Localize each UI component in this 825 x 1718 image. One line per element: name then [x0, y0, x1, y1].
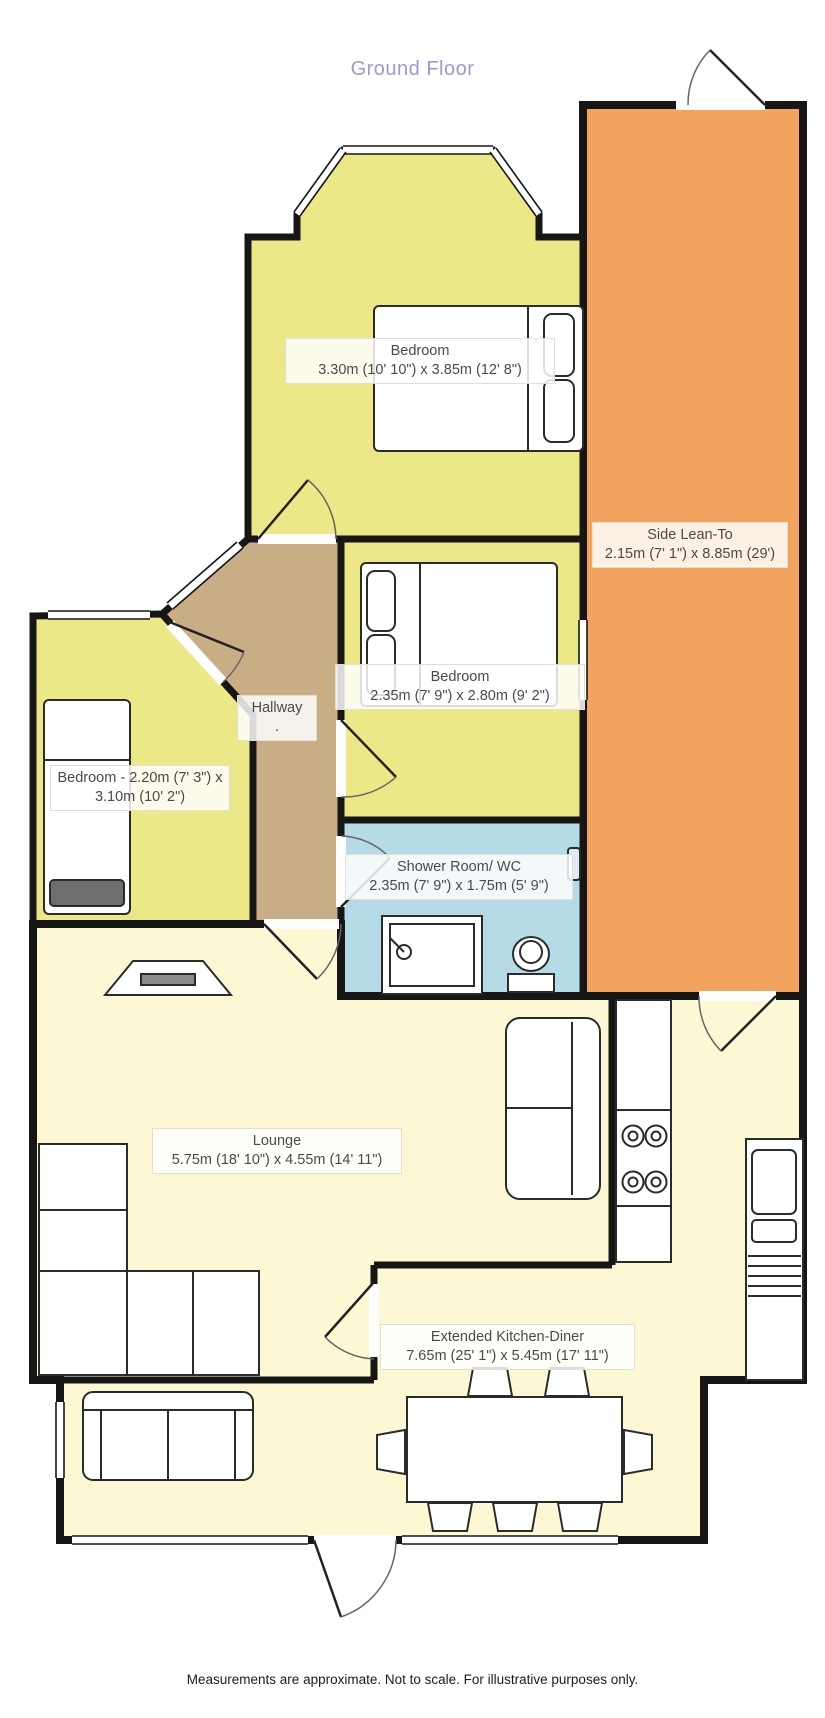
room-dims: 5.75m (18' 10") x 4.55m (14' 11") [172, 1151, 383, 1170]
room-dims: 2.35m (7' 9") x 1.75m (5' 9") [369, 877, 548, 896]
window-icon [402, 1536, 618, 1544]
sink-icon [746, 1139, 803, 1380]
hob-icon [616, 1000, 671, 1262]
room-label-kitchen-diner: Extended Kitchen-Diner 7.65m (25' 1") x … [380, 1324, 635, 1370]
door-arc-icon [688, 50, 765, 105]
room-label-bedroom-middle: Bedroom 2.35m (7' 9") x 2.80m (9' 2") [335, 664, 585, 710]
room-name: Bedroom [431, 668, 490, 687]
room-label-side-lean-to: Side Lean-To 2.15m (7' 1") x 8.85m (29') [592, 522, 788, 568]
room-name: Bedroom - 2.20m (7' 3") x 3.10m (10' 2") [56, 769, 224, 807]
room-dims: 2.15m (7' 1") x 8.85m (29') [605, 545, 775, 564]
room-label-bedroom-top: Bedroom 3.30m (10' 10") x 3.85m (12' 8") [285, 338, 555, 384]
room-name: Hallway [252, 699, 303, 718]
room-dims: 7.65m (25' 1") x 5.45m (17' 11") [406, 1347, 609, 1366]
room-dims: 2.35m (7' 9") x 2.80m (9' 2") [370, 687, 549, 706]
sofa-icon [83, 1392, 253, 1480]
room-dims: 3.30m (10' 10") x 3.85m (12' 8") [318, 361, 522, 380]
sofa-icon [506, 1018, 600, 1199]
room-label-hallway: Hallway . [237, 695, 317, 741]
room-name: Bedroom [391, 342, 450, 361]
floorplan-page: Ground Floor [0, 0, 825, 1718]
room-label-bedroom-left: Bedroom - 2.20m (7' 3") x 3.10m (10' 2") [50, 765, 230, 811]
window-icon [48, 611, 150, 619]
window-icon [56, 1402, 64, 1478]
disclaimer-text: Measurements are approximate. Not to sca… [0, 1672, 825, 1687]
door-arc-icon [314, 1540, 396, 1617]
room-label-lounge: Lounge 5.75m (18' 10") x 4.55m (14' 11") [152, 1128, 402, 1174]
room-name: Side Lean-To [647, 526, 732, 545]
window-icon [72, 1536, 308, 1544]
room-label-shower-room: Shower Room/ WC 2.35m (7' 9") x 1.75m (5… [345, 854, 573, 900]
shower-tray-icon [382, 916, 482, 994]
room-name: Shower Room/ WC [397, 858, 521, 877]
room-dims: . [275, 718, 279, 737]
room-name: Lounge [253, 1132, 301, 1151]
room-name: Extended Kitchen-Diner [431, 1328, 584, 1347]
